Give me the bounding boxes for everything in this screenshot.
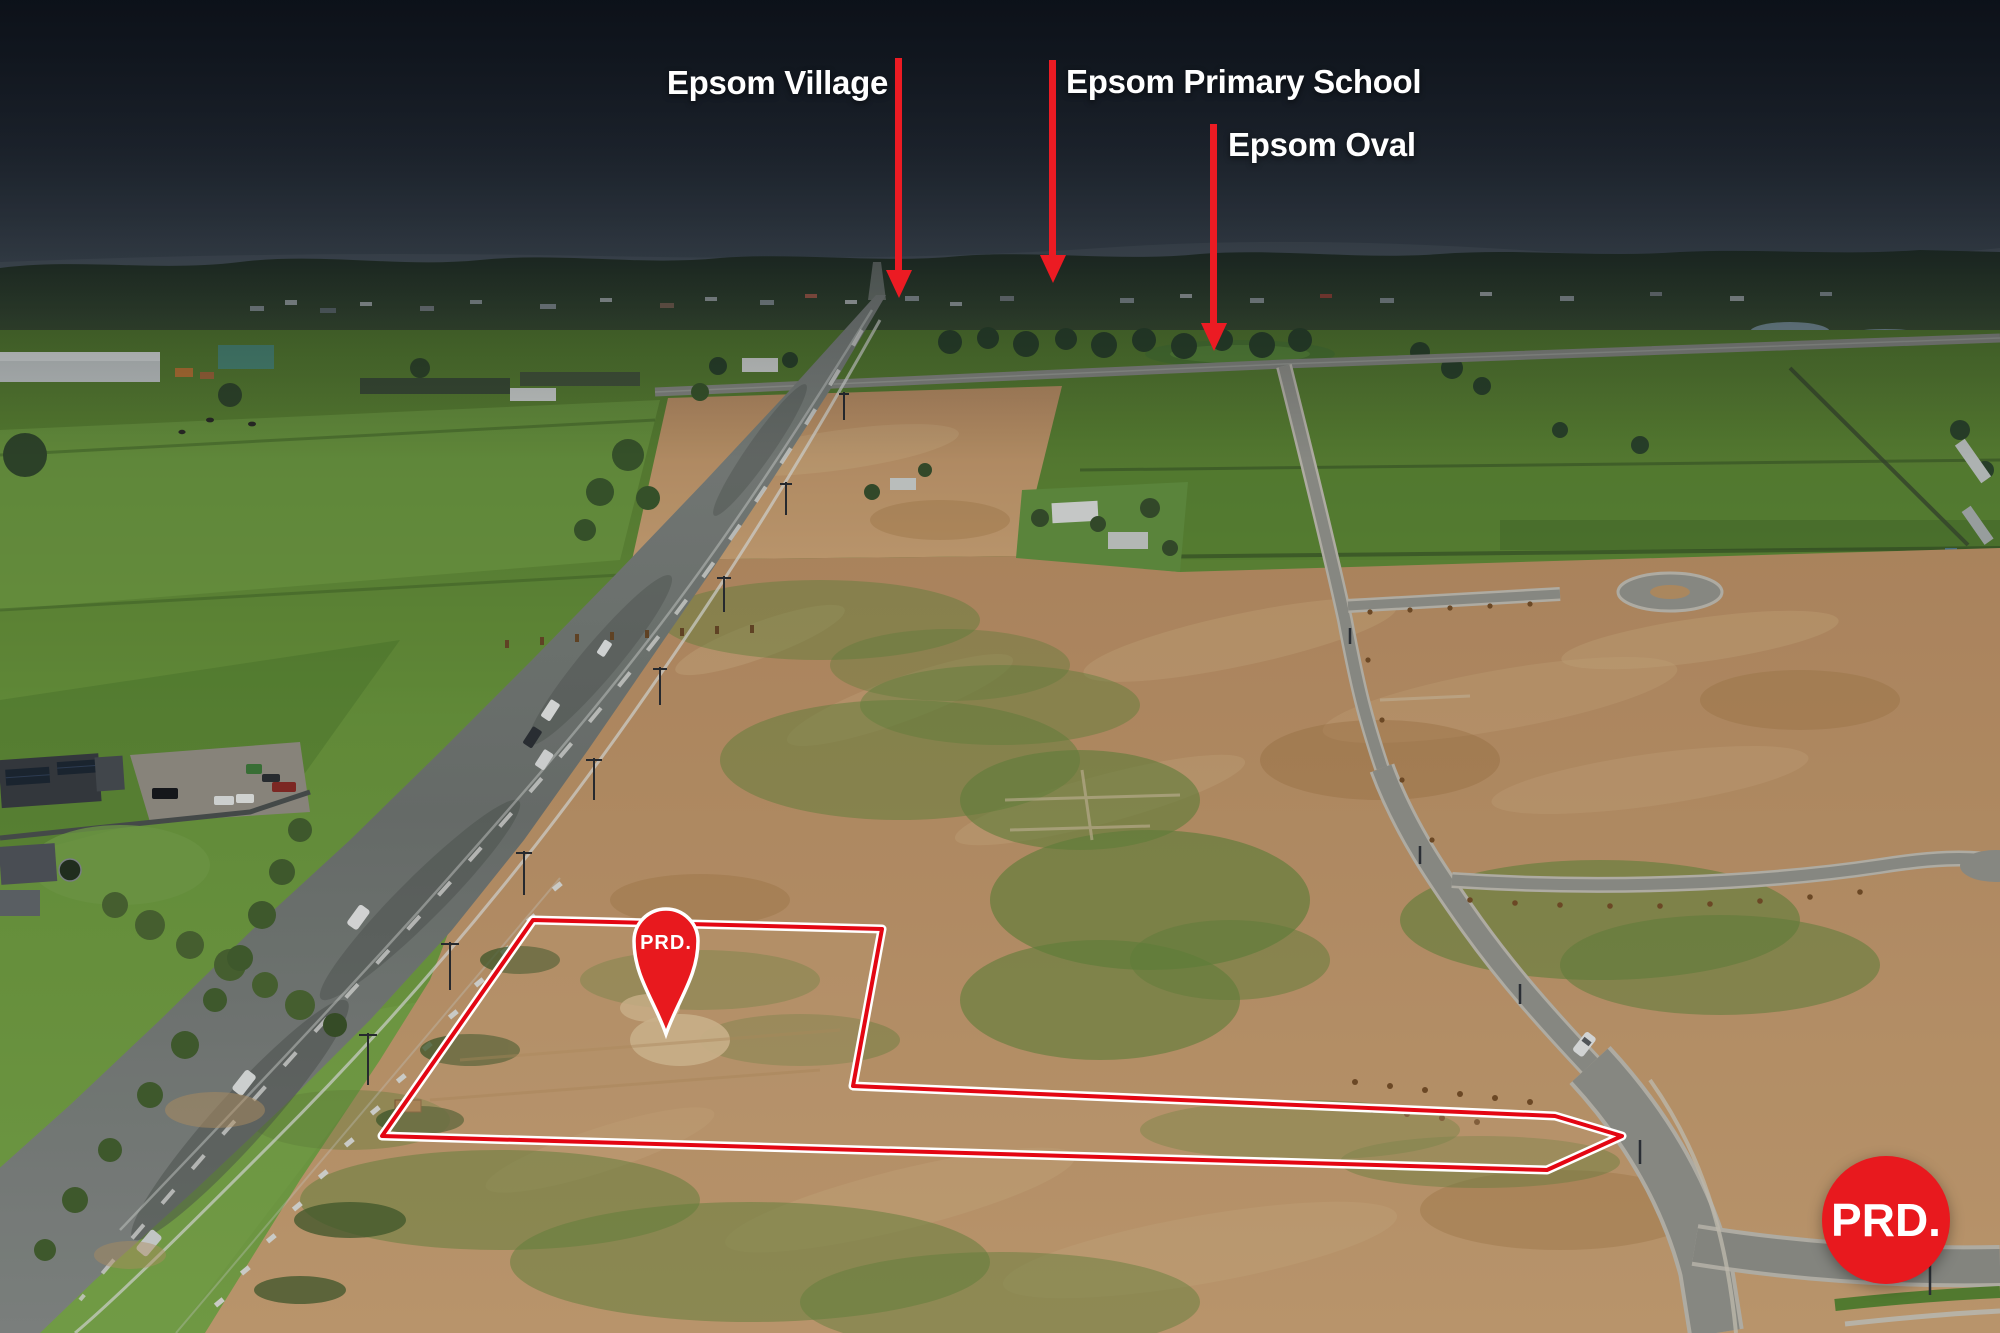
- pin-icon: [634, 909, 698, 1034]
- arrow-line: [1210, 124, 1217, 323]
- label-epsom-oval: Epsom Oval: [1228, 126, 1416, 164]
- property-boundary: [382, 920, 1622, 1170]
- arrow-head-icon: [886, 270, 912, 298]
- label-epsom-primary-school: Epsom Primary School: [1066, 63, 1421, 101]
- prd-logo-text: PRD.: [1831, 1193, 1941, 1247]
- arrow-line: [895, 58, 902, 270]
- arrow-line: [1049, 60, 1056, 255]
- label-epsom-village: Epsom Village: [667, 64, 888, 102]
- location-pin[interactable]: PRD.: [634, 909, 698, 1034]
- property-boundary-outline: [382, 920, 1622, 1170]
- arrow-head-icon: [1040, 255, 1066, 283]
- arrow-head-icon: [1201, 323, 1227, 351]
- prd-logo[interactable]: PRD.: [1822, 1156, 1950, 1284]
- annotation-overlay: PRD.: [0, 0, 2000, 1333]
- aerial-property-photo: PRD. Epsom Village Epsom Primary School …: [0, 0, 2000, 1333]
- pin-label: PRD.: [640, 932, 692, 954]
